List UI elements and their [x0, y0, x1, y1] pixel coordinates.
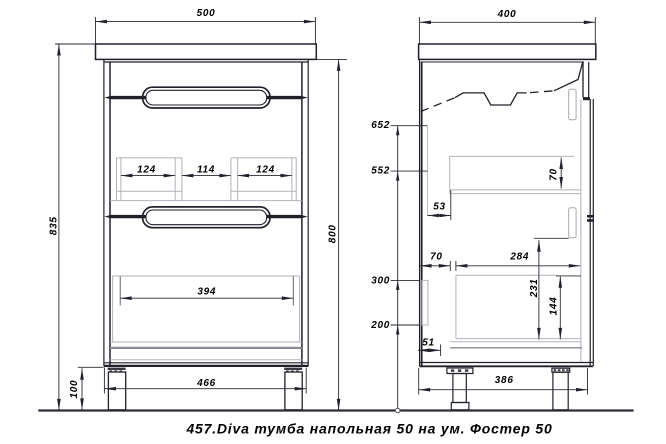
svg-text:835: 835	[48, 216, 59, 235]
svg-text:231: 231	[529, 279, 540, 299]
svg-text:114: 114	[197, 164, 215, 175]
svg-text:70: 70	[430, 252, 443, 263]
svg-text:652: 652	[371, 120, 390, 131]
svg-text:200: 200	[370, 320, 390, 331]
svg-text:457.Diva тумба напольная 50 на: 457.Diva тумба напольная 50 на ум. Фосте…	[185, 421, 552, 437]
svg-text:51: 51	[422, 338, 435, 349]
svg-text:300: 300	[371, 275, 390, 286]
svg-text:53: 53	[433, 202, 446, 213]
svg-text:124: 124	[137, 164, 156, 175]
svg-text:144: 144	[548, 297, 559, 316]
svg-text:800: 800	[328, 224, 339, 243]
svg-text:284: 284	[509, 252, 529, 263]
svg-text:100: 100	[69, 380, 80, 399]
svg-text:394: 394	[197, 287, 216, 298]
svg-text:400: 400	[497, 9, 517, 20]
svg-text:70: 70	[549, 168, 560, 181]
svg-text:466: 466	[196, 378, 216, 389]
svg-text:500: 500	[197, 8, 216, 19]
svg-text:386: 386	[495, 375, 514, 386]
svg-text:124: 124	[256, 164, 275, 175]
svg-text:552: 552	[371, 166, 390, 177]
